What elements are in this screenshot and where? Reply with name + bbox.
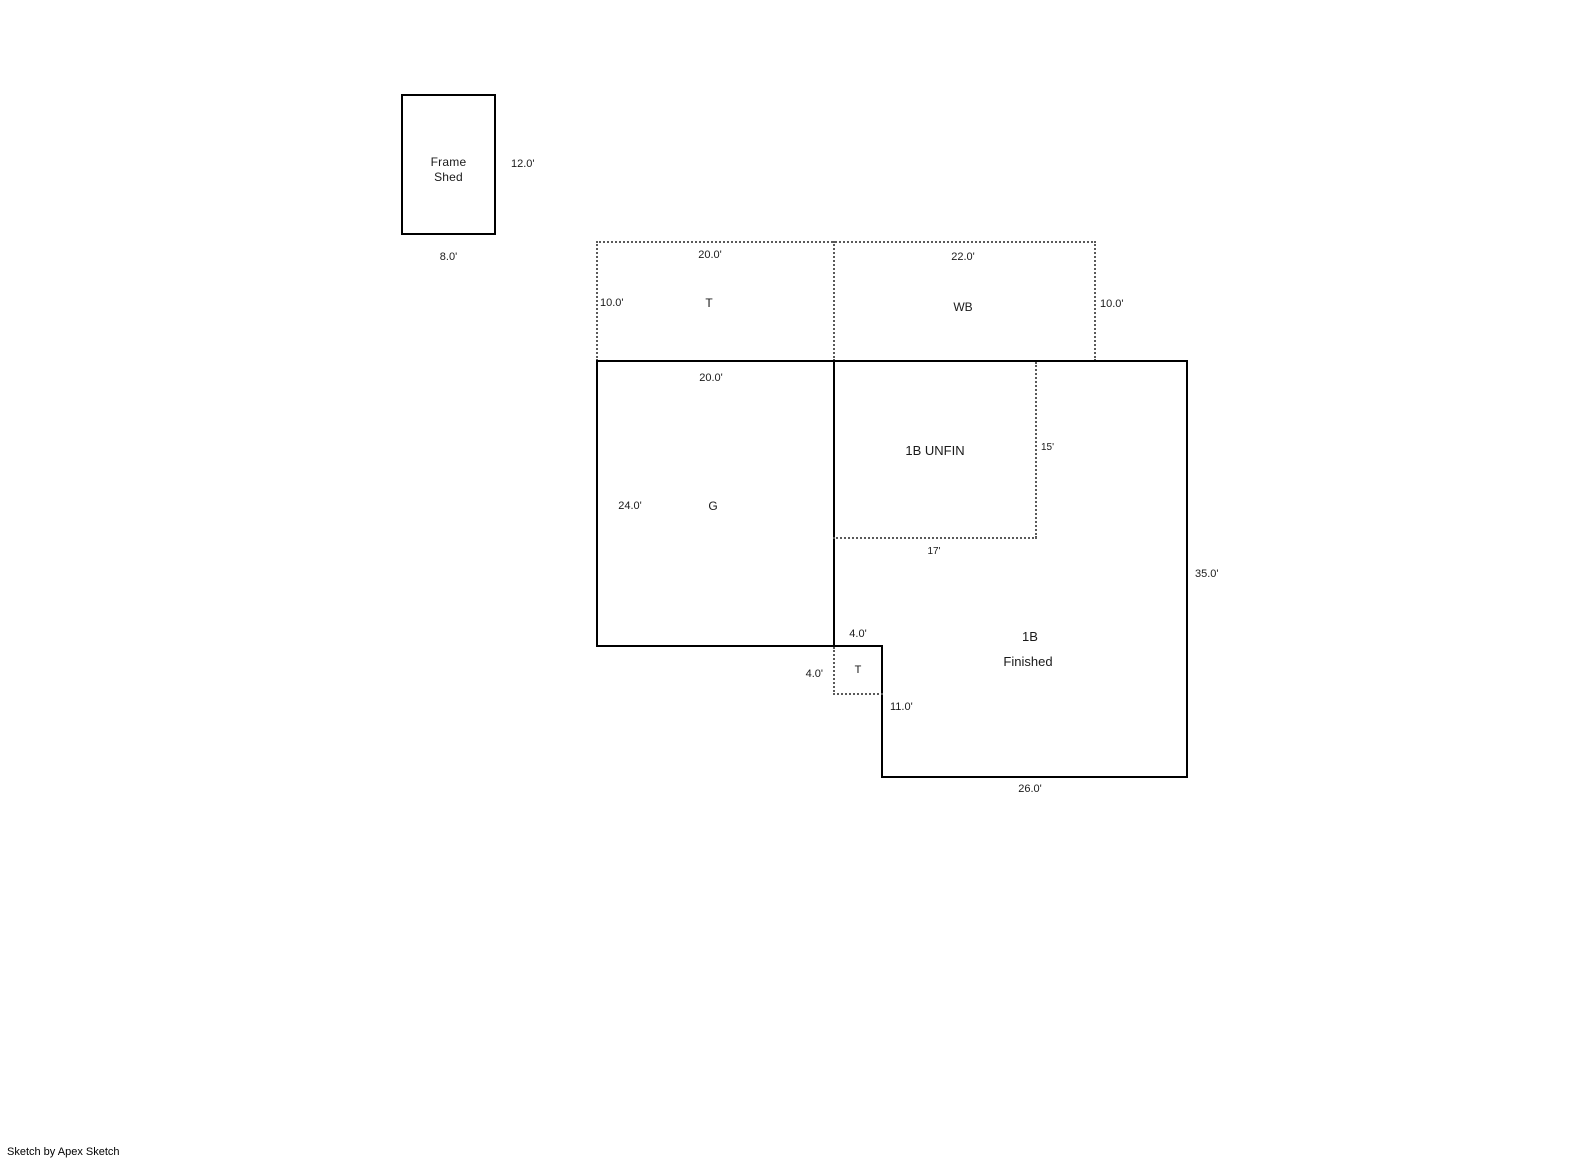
dim-unfin-bottom: 17' <box>909 546 959 558</box>
dim-shed-bottom: 8.0' <box>401 251 496 264</box>
dim-unfin-right: 15' <box>1041 442 1054 454</box>
garage-label: G <box>688 499 738 514</box>
basement-unfin-label: 1B UNFIN <box>885 443 985 459</box>
dim-porch-t-top: 20.0' <box>685 249 735 262</box>
wall-bottom-edge <box>881 776 1188 778</box>
dotted-porch-divider <box>833 241 835 361</box>
dotted-t-small-left-edge <box>833 647 835 695</box>
dim-porch-wb-right: 10.0' <box>1100 298 1124 311</box>
dim-finished-step: 11.0' <box>890 701 913 714</box>
dotted-porch-left-edge <box>596 241 598 361</box>
dotted-unfin-bottom-edge <box>833 537 1037 539</box>
dotted-porch-top-edge <box>596 241 1096 243</box>
dim-porch-t-left: 10.0' <box>600 297 624 310</box>
dim-finished-right: 35.0' <box>1195 568 1219 581</box>
wall-right-edge <box>1186 360 1188 778</box>
wall-garage-divider <box>833 360 835 647</box>
dotted-unfin-right-edge <box>1035 362 1037 538</box>
basement-fin-label-line1: 1B <box>980 629 1080 645</box>
dim-garage-left: 24.0' <box>605 500 655 513</box>
t-small-label: T <box>836 664 880 677</box>
wall-step-edge <box>881 645 883 778</box>
dim-porch-wb-top: 22.0' <box>938 251 988 264</box>
porch-wb-label: WB <box>938 300 988 315</box>
sketch-attribution: Sketch by Apex Sketch <box>7 1146 120 1159</box>
basement-fin-label-line2: Finished <box>978 654 1078 670</box>
floorplan-sketch: Frame Shed 12.0' 8.0' 20.0' 10.0' T 22.0… <box>0 0 1585 1163</box>
frame-shed-label: Frame Shed <box>401 155 496 185</box>
dim-garage-top: 20.0' <box>686 372 736 385</box>
wall-top-edge <box>596 360 1188 362</box>
dim-shed-right: 12.0' <box>511 158 535 171</box>
porch-t-label: T <box>684 296 734 311</box>
dim-t-small-left: 4.0' <box>783 668 823 681</box>
wall-left-edge <box>596 360 598 647</box>
wall-garage-bottom <box>596 645 883 647</box>
frame-shed-label-line2: Shed <box>401 170 496 185</box>
dotted-porch-right-edge <box>1094 241 1096 361</box>
frame-shed-label-line1: Frame <box>401 155 496 170</box>
dotted-t-small-bottom-edge <box>833 693 883 695</box>
dim-t-small-top: 4.0' <box>836 628 880 641</box>
dim-finished-bottom: 26.0' <box>1005 783 1055 796</box>
